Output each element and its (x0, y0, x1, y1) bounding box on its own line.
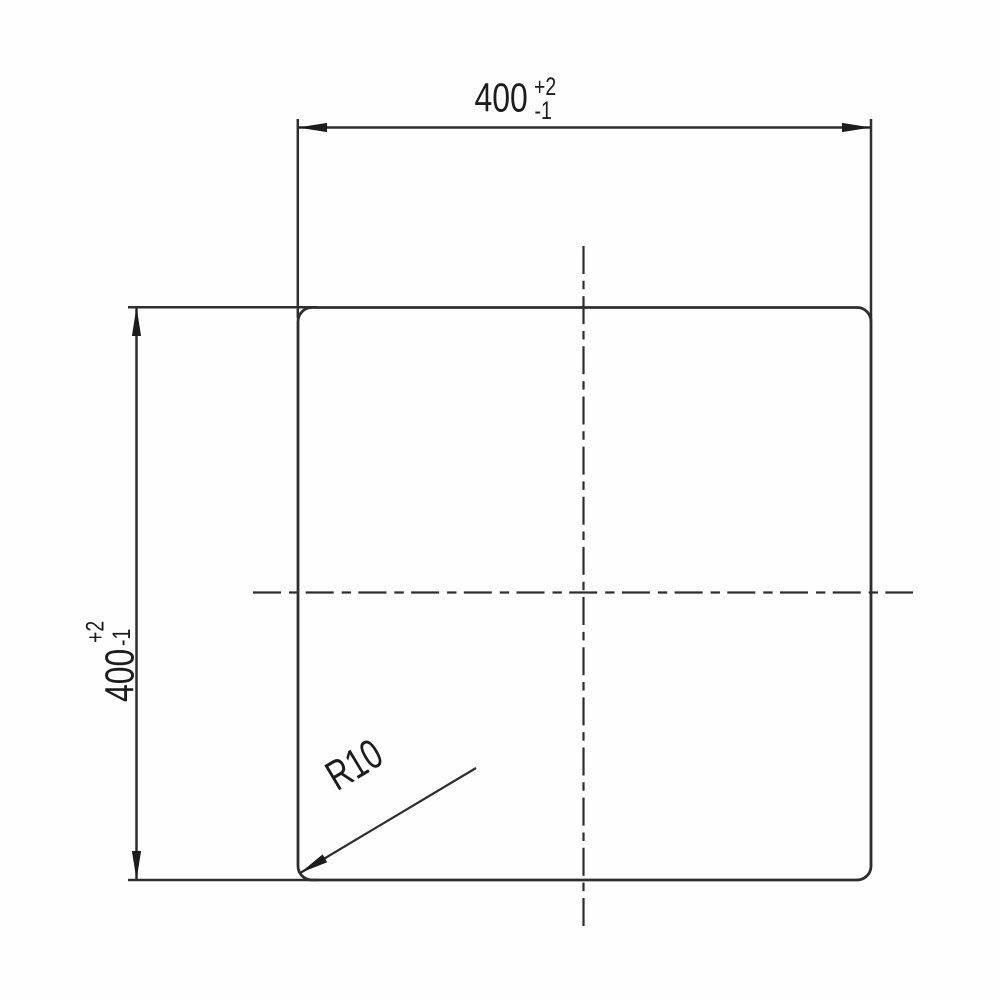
svg-text:-1: -1 (108, 629, 136, 646)
svg-text:400: 400 (475, 75, 528, 121)
svg-text:+2: +2 (81, 621, 109, 643)
svg-text:-1: -1 (535, 97, 552, 125)
svg-text:400: 400 (97, 649, 143, 702)
svg-text:R10: R10 (318, 730, 391, 799)
